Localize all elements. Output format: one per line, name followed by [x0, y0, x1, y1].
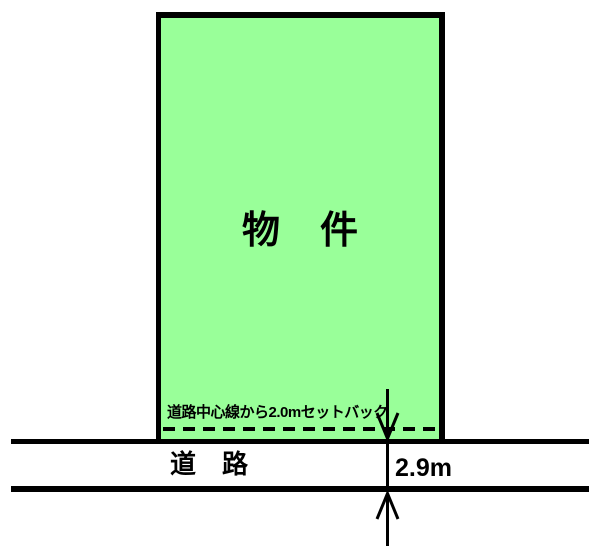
road-width-value: 2.9m — [395, 456, 452, 481]
road-arrow-up-icon — [377, 494, 398, 547]
setback-note: 道路中心線から2.0mセットバック — [167, 404, 387, 422]
road-label: 道 路 — [170, 450, 248, 479]
property-label: 物 件 — [156, 212, 445, 250]
site-plan-diagram: 物 件 道路中心線から2.0mセットバック 道 路 2.9m — [0, 0, 600, 553]
road-edge-line-bottom — [11, 486, 589, 492]
setback-dashed-line — [163, 427, 440, 431]
road-edge-line-top — [11, 439, 589, 444]
